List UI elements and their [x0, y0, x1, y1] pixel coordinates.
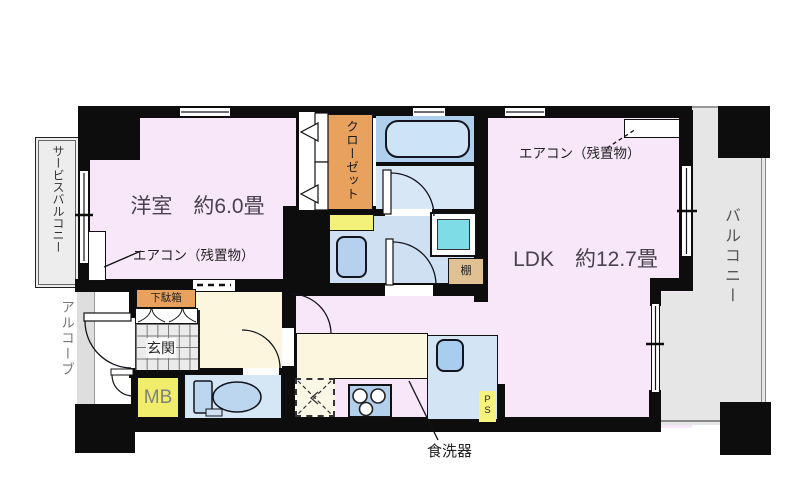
wall-bottom: [133, 417, 661, 432]
door-gap-washroom: [385, 285, 433, 296]
label-ldk: LDK 約12.7畳: [488, 243, 683, 273]
door-gap-ldk: [282, 327, 294, 367]
kitchen-sink: [436, 339, 464, 372]
label-balcony: バルコニー: [718, 207, 742, 337]
label-alcove: アルコーブ: [56, 300, 76, 400]
kitchen-counter: [296, 333, 428, 379]
label-shelf: 棚: [448, 258, 484, 285]
window-balcony-lower: [651, 304, 660, 392]
mb-door-arc: [112, 375, 133, 396]
stove: [348, 384, 392, 418]
aircon-unit-ldk: [624, 119, 680, 138]
shoe-cabinet-doors: [135, 308, 198, 324]
washroom-upper: [376, 166, 474, 209]
label-service-balcony: サービスバルコニー: [50, 145, 67, 283]
vanity-basin: [336, 236, 367, 278]
label-aircon-ldk: エアコン（残置物）: [519, 142, 641, 162]
label-aircon-west: エアコン（残置物）: [133, 244, 255, 264]
label-shoe-cabinet: 下駄箱: [136, 289, 196, 308]
label-meter-box: MB: [138, 378, 178, 417]
toilet-room: [185, 375, 281, 418]
label-closet: クローゼット: [342, 120, 361, 208]
window-top-west: [180, 107, 230, 117]
label-entrance: 玄関: [146, 338, 176, 358]
counter-yellow-bar: [329, 214, 374, 231]
hallway-floor: [196, 292, 282, 368]
label-pipe-space: PS: [482, 394, 493, 420]
fridge-space: [295, 378, 335, 417]
closet-recess: [299, 112, 315, 210]
alcove-floor: [77, 292, 95, 406]
wall-bottom-left-chunk: [75, 404, 135, 453]
label-western-room: 洋室 約6.0畳: [95, 190, 300, 220]
entrance-step-line: [198, 310, 200, 370]
bathtub: [385, 120, 470, 158]
pillar-top-right: [718, 106, 770, 158]
label-dishwasher: 食洗器: [427, 440, 472, 461]
window-top-ldk: [505, 107, 545, 117]
floor-plan: 洋室 約6.0畳 LDK 約12.7畳 エアコン（残置物） エアコン（残置物） …: [0, 0, 800, 487]
aircon-unit-west: [88, 231, 106, 281]
washing-machine-pan-inner: [437, 219, 470, 250]
door-gap-western: [193, 280, 235, 291]
pillar-bottom-right: [720, 402, 771, 455]
